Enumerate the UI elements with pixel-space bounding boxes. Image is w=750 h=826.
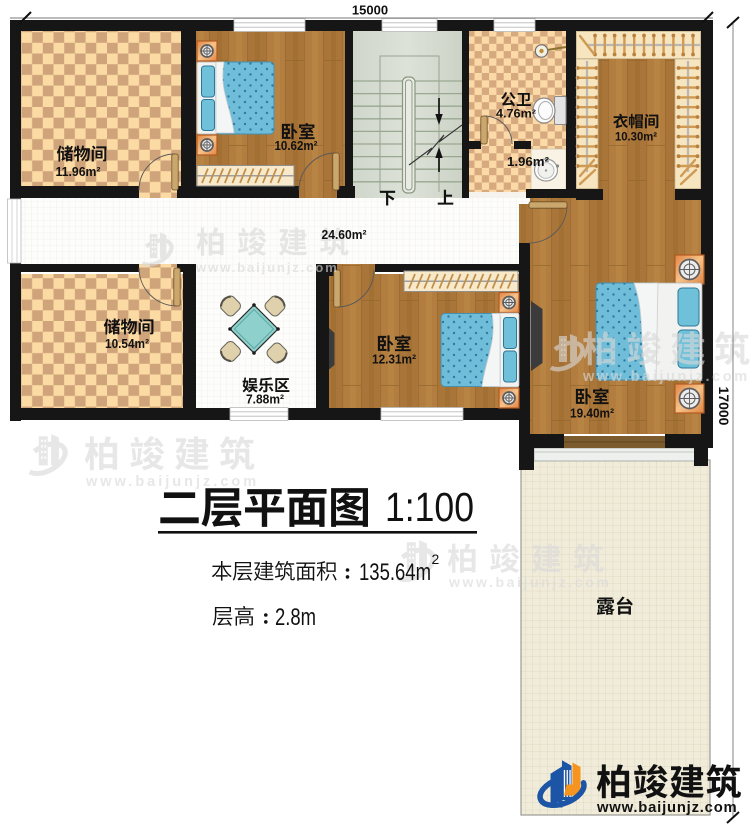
svg-text:7.88m²: 7.88m² (246, 393, 284, 407)
svg-text:17000: 17000 (716, 387, 732, 426)
svg-text:1:100: 1:100 (385, 484, 474, 530)
svg-text:10.62m²: 10.62m² (275, 138, 319, 153)
svg-text:12.31m²: 12.31m² (372, 352, 417, 367)
svg-text:10.54m²: 10.54m² (105, 336, 150, 351)
svg-text:10.30m²: 10.30m² (615, 130, 657, 144)
svg-text:www.baijunjz.com: www.baijunjz.com (85, 474, 259, 490)
svg-text:15000: 15000 (352, 3, 388, 18)
svg-text:19.40m²: 19.40m² (570, 406, 615, 421)
svg-text:www.baijunjz.com: www.baijunjz.com (596, 800, 738, 816)
svg-text:4.76m²: 4.76m² (496, 109, 536, 121)
svg-text:11.96m²: 11.96m² (56, 164, 102, 179)
svg-text:24.60m²: 24.60m² (322, 227, 368, 242)
svg-text:135.64m: 135.64m (359, 559, 431, 586)
svg-text:1.96m²: 1.96m² (507, 155, 549, 169)
svg-text:2.8m: 2.8m (275, 604, 316, 631)
svg-text:www.baijunjz.com: www.baijunjz.com (582, 369, 750, 385)
svg-text:www.baijunjz.com: www.baijunjz.com (195, 260, 339, 275)
svg-text:www.baijunjz.com: www.baijunjz.com (448, 574, 611, 590)
svg-text:2: 2 (432, 551, 440, 567)
